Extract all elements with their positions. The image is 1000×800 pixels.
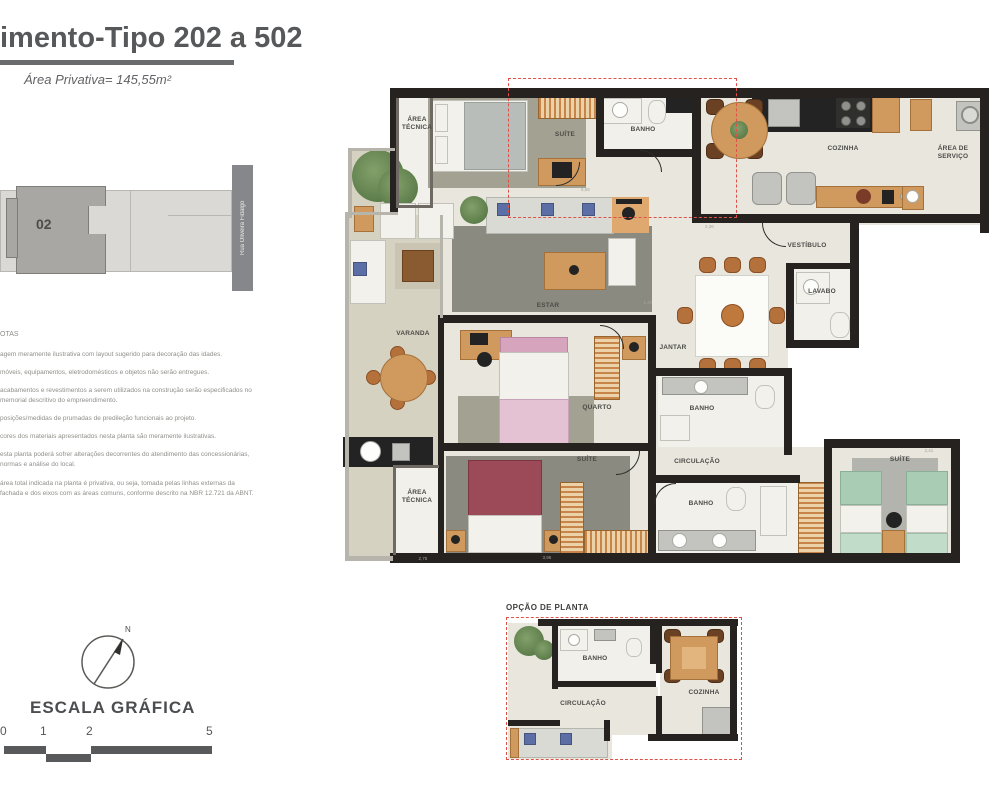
suite3-bed-mid — [906, 505, 948, 533]
estar-plant — [460, 196, 488, 224]
suite2-wardrobe — [584, 530, 650, 554]
room-label: LAVABO — [799, 288, 845, 298]
quarto-bed — [499, 352, 569, 402]
wall-suite2-top — [438, 443, 656, 451]
varanda-round-table — [380, 354, 428, 402]
cooktop-burner — [856, 116, 866, 126]
suite3-nightstand — [882, 530, 905, 554]
suite2-lamp — [451, 535, 460, 544]
varanda-railing — [345, 212, 349, 560]
banho3-toilet — [726, 487, 746, 511]
room-label: JANTAR — [651, 344, 695, 354]
wall-banho3-top — [648, 475, 800, 483]
suite3-bed-head — [840, 471, 882, 505]
island-bowl — [856, 189, 871, 204]
suite3-bed-head — [906, 471, 948, 505]
varanda-railing — [345, 212, 398, 215]
wall-kitchen-bottom — [698, 214, 988, 223]
wall-banho2-right — [784, 368, 792, 455]
wall-area-tecnica — [396, 98, 399, 208]
coffee-table-decor — [569, 265, 579, 275]
room-label: CIRCULAÇÃO — [668, 458, 726, 467]
varanda-pillow — [353, 262, 367, 276]
quarto-chair — [477, 352, 492, 367]
grill-counter — [343, 437, 433, 467]
suite2-wardrobe — [560, 482, 584, 554]
dining-chair — [724, 257, 741, 273]
varanda-armchair — [380, 203, 416, 239]
kitchen-cabinet — [872, 97, 900, 133]
room-label: SUÍTE — [564, 456, 610, 466]
dining-chair — [769, 307, 785, 324]
lavabo-toilet — [830, 312, 850, 338]
cooktop-burner — [841, 116, 851, 126]
varanda-armchair — [418, 203, 454, 239]
option-area-outline — [508, 78, 737, 218]
dimension: 1,40 — [644, 301, 659, 307]
suite2-blanket — [468, 460, 542, 518]
wall-area-tecnica — [393, 465, 396, 555]
room-label: VARANDA — [389, 330, 437, 340]
banho2-toilet — [755, 385, 775, 409]
room-label: ESTAR — [526, 302, 570, 312]
quarto-blanket — [499, 399, 569, 446]
suite1-pillow — [435, 136, 448, 164]
wall-suite3-right — [951, 439, 960, 562]
area-tecnica-bottom-floor — [395, 467, 439, 555]
wall-bottom — [390, 553, 960, 563]
banho2-sink — [694, 380, 708, 394]
room-label: QUARTO — [574, 404, 620, 414]
dimension: 2,75 — [419, 557, 434, 563]
dining-chair — [699, 257, 716, 273]
hall-wardrobe — [798, 482, 825, 555]
page: { "header": { "title": "imento-Tipo 202 … — [0, 0, 1000, 800]
wall-quarto-right — [648, 315, 656, 451]
suite3-lamp — [886, 512, 902, 528]
suite2-lamp — [549, 535, 558, 544]
wall-suite3-left — [824, 445, 832, 562]
wall-area-tecnica — [430, 98, 433, 208]
cooktop-burner — [856, 101, 866, 111]
room-label: VESTÍBULO — [779, 242, 835, 252]
room-label: BANHO — [678, 500, 724, 510]
quarto-computer — [470, 333, 488, 345]
cooktop-burner — [841, 101, 851, 111]
varanda-railing — [345, 556, 393, 561]
room-label: ÁREA TÉCNICA — [398, 116, 436, 132]
varanda-railing — [348, 148, 395, 151]
table-centerpiece — [721, 304, 744, 327]
dining-chair — [677, 307, 693, 324]
banho3-tub — [760, 486, 787, 536]
room-label: COZINHA — [818, 145, 868, 155]
grill-sink — [392, 443, 410, 461]
suite2-sheets — [468, 515, 542, 553]
option-plan-border — [506, 617, 742, 760]
wall-estar-quarto — [438, 315, 656, 323]
kitchen-stool — [752, 172, 782, 205]
suite1-pillow — [435, 104, 448, 132]
wall-area-tecnica — [393, 465, 439, 468]
wall-vestibulo-right — [850, 223, 859, 348]
room-label: ÁREA TÉCNICA — [395, 489, 439, 507]
wall-area-tecnica — [396, 205, 433, 208]
island-item — [882, 190, 894, 204]
wall-right-upper — [980, 88, 989, 233]
wall-lavabo-left — [786, 263, 794, 348]
wall-banho2-top — [652, 368, 792, 376]
banho3-sink — [672, 533, 687, 548]
varanda-railing — [348, 148, 352, 218]
banho3-sink — [712, 533, 727, 548]
grill — [360, 441, 381, 462]
dining-chair — [749, 257, 766, 273]
dimension: 2,36 — [705, 225, 723, 231]
floor-plan: ÁREA TÉCNICASUÍTEBANHOCOZINHAÁREA DE SER… — [0, 0, 1000, 800]
kitchen-stool — [786, 172, 816, 205]
wall-lavabo-bottom — [786, 340, 859, 348]
wall-lavabo-top — [786, 263, 858, 269]
dimension: 2,41 — [925, 449, 940, 455]
service-cabinet — [910, 99, 932, 131]
room-label: SUÍTE — [877, 456, 923, 466]
suite3-bed-mid — [840, 505, 882, 533]
varanda-table — [402, 250, 434, 282]
tv-rack — [608, 238, 636, 286]
varanda-side-table — [354, 206, 374, 232]
room-label: BANHO — [680, 405, 724, 415]
kitchen-sink — [768, 99, 800, 127]
wall-varanda-inner — [438, 318, 444, 558]
varanda-chair — [366, 370, 381, 385]
varanda-glass-door — [440, 215, 443, 318]
tank-sink — [906, 190, 919, 203]
quarto-decor — [629, 342, 639, 352]
dimension: 3,95 — [543, 556, 558, 562]
room-label: ÁREA DE SERVIÇO — [928, 145, 978, 163]
wall-suite3-top — [824, 439, 960, 448]
washer-door — [961, 106, 979, 124]
banho2-shower — [660, 415, 690, 441]
